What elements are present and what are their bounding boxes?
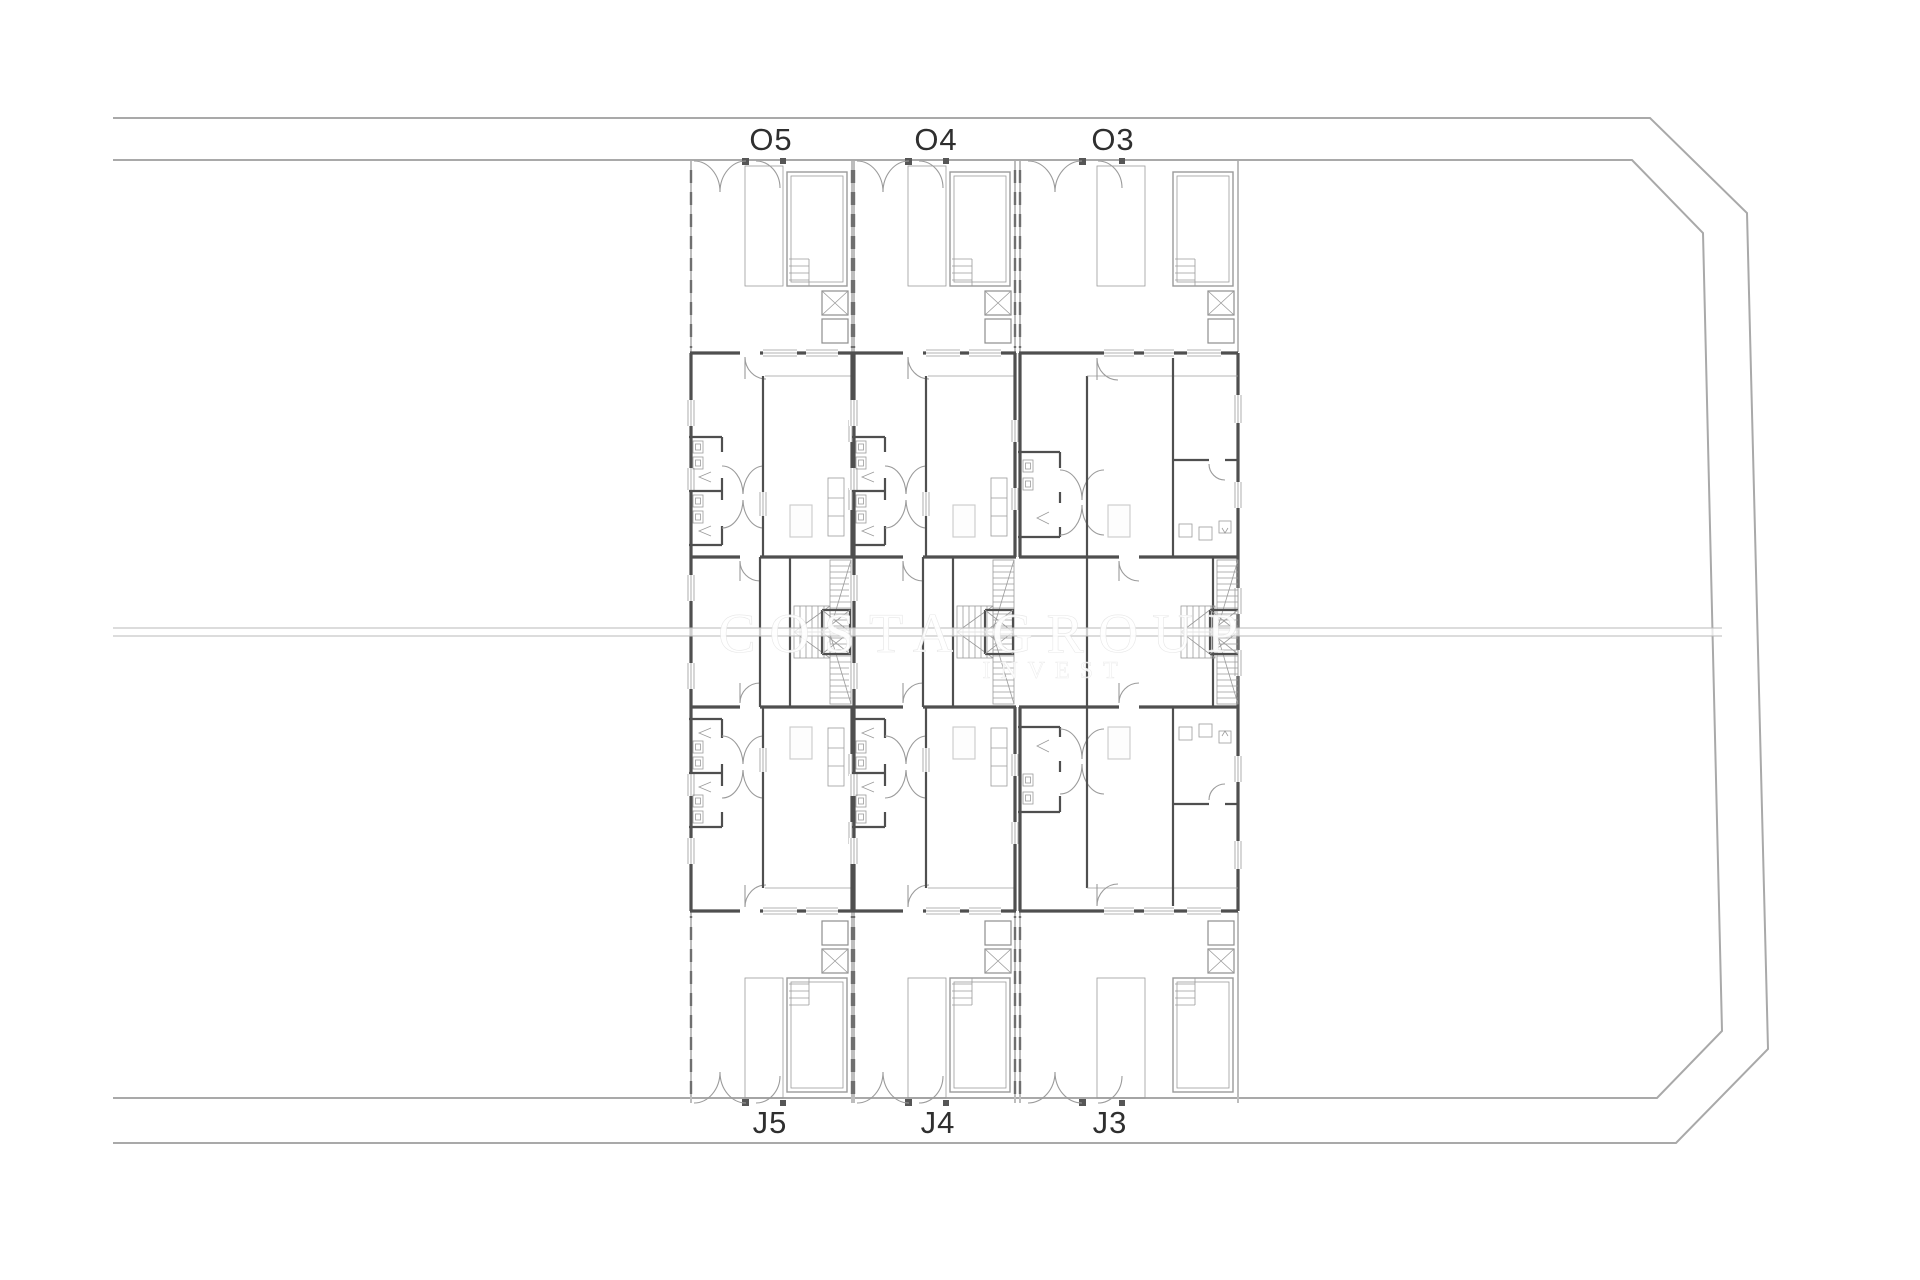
floor-plan-page: COSTA GROUP INVEST O5 O4 O3 J5 J4 J3 [0,0,1920,1280]
floor-plan-svg: COSTA GROUP INVEST O5 O4 O3 J5 J4 J3 [0,0,1920,1280]
units-top-row [686,158,1244,632]
unit-label-o3: O3 [1091,122,1134,157]
unit-o3 [1018,158,1244,632]
unit-o4 [849,158,1020,632]
unit-label-j5: J5 [753,1105,788,1140]
unit-j4 [849,632,1020,1106]
unit-label-j3: J3 [1093,1105,1128,1140]
unit-j3 [1018,632,1244,1106]
unit-label-o4: O4 [914,122,957,157]
watermark-line2: INVEST [982,658,1127,684]
units-bottom-row [686,632,1244,1106]
unit-label-o5: O5 [749,122,792,157]
watermark-line1: COSTA GROUP [718,603,1252,665]
unit-o5 [686,158,857,632]
unit-label-j4: J4 [921,1105,956,1140]
watermark: COSTA GROUP INVEST [718,603,1252,684]
unit-j5 [686,632,857,1106]
